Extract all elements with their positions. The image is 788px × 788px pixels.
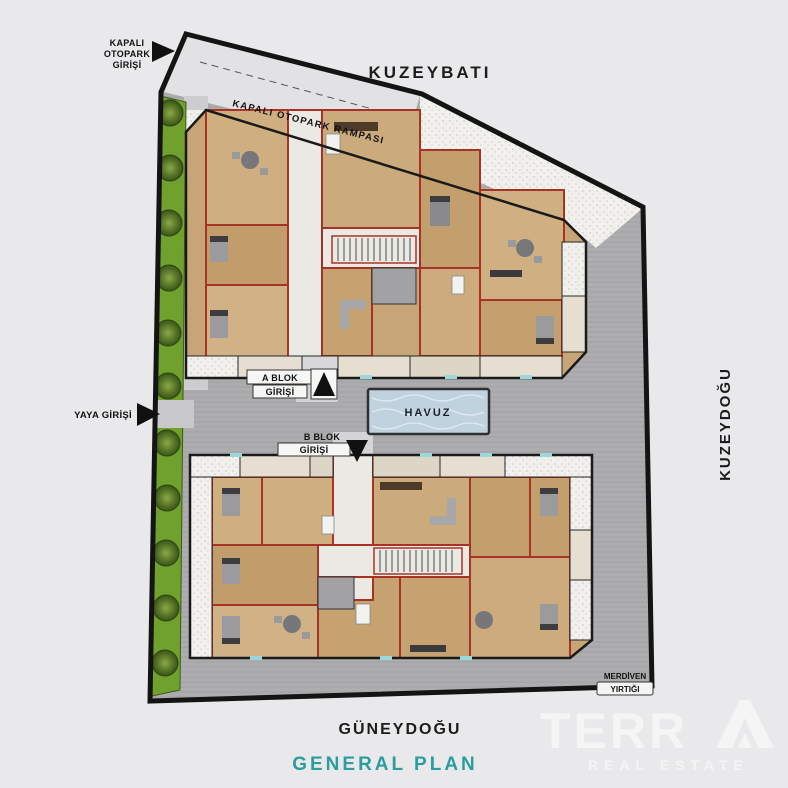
brand-lambda-triangle-icon [738,733,752,748]
balcony [480,356,562,378]
pedestrian-entrance-annotation: YAYA GİRİŞİ [74,403,160,426]
block-b-label-line2: GİRİŞİ [300,445,329,455]
balcony [310,455,333,477]
room [420,268,480,356]
balcony [562,242,586,296]
block-a-entrance-annotation: A BLOK GİRİŞİ [247,369,337,399]
tree-icon [152,650,178,676]
block-b-label-line1: B BLOK [304,432,340,442]
parking-entrance-label-line1: KAPALI [110,38,145,48]
tree-icon [153,540,179,566]
pedestrian-entrance-label: YAYA GİRİŞİ [74,410,132,421]
elevator-core [372,268,416,304]
balcony [240,455,310,477]
corridor [318,545,470,577]
plan-title: GENERAL PLAN [292,754,478,775]
stair-shaft-annotation: MERDİVEN YIRTIĞI [597,672,653,695]
balcony [570,580,592,640]
balcony [562,296,586,352]
arrow-right-icon [152,41,175,62]
building-b [190,453,592,660]
site-interior: HAVUZ [140,20,670,720]
balcony [190,455,240,477]
tree-icon [153,595,179,621]
balcony [570,530,592,580]
balcony [505,455,592,477]
corridor [288,110,322,378]
balcony [570,477,592,530]
balcony [410,356,480,378]
compass-label-northeast: KUZEYDOĞU [716,367,734,481]
parking-entrance-label-line3: GİRİŞİ [113,60,142,70]
site-plan-page: HAVUZ KAPALI OTOPARK RAMPASI KAPALI OTOP… [0,0,788,788]
brand-watermark: TERR REAL ESTATE [540,700,774,773]
elevator-core [318,577,354,609]
tree-icon [154,485,180,511]
pool: HAVUZ [368,389,489,434]
compass-label-southeast: GÜNEYDOĞU [339,719,462,738]
brand-name: TERR [540,703,688,759]
compass-label-northwest: KUZEYBATI [368,63,491,82]
balcony [338,356,410,378]
brand-tagline: REAL ESTATE [588,757,749,773]
stair-shaft-label-line1: MERDİVEN [604,672,646,681]
block-a-label-line1: A BLOK [262,373,298,383]
balcony [373,455,440,477]
balcony [190,477,212,658]
tree-icon [155,373,181,399]
parking-entrance-annotation: KAPALI OTOPARK GİRİŞİ [104,38,175,70]
tree-icon [154,430,180,456]
balcony [440,455,505,477]
balcony [186,356,238,378]
parking-entrance-label-line2: OTOPARK [104,49,150,59]
block-a-label-line2: GİRİŞİ [266,387,295,397]
general-plan-drawing: HAVUZ KAPALI OTOPARK RAMPASI KAPALI OTOP… [0,0,788,788]
pool-label: HAVUZ [404,407,451,419]
stair-shaft-label-line2: YIRTIĞI [611,685,640,694]
corridor [322,228,420,268]
